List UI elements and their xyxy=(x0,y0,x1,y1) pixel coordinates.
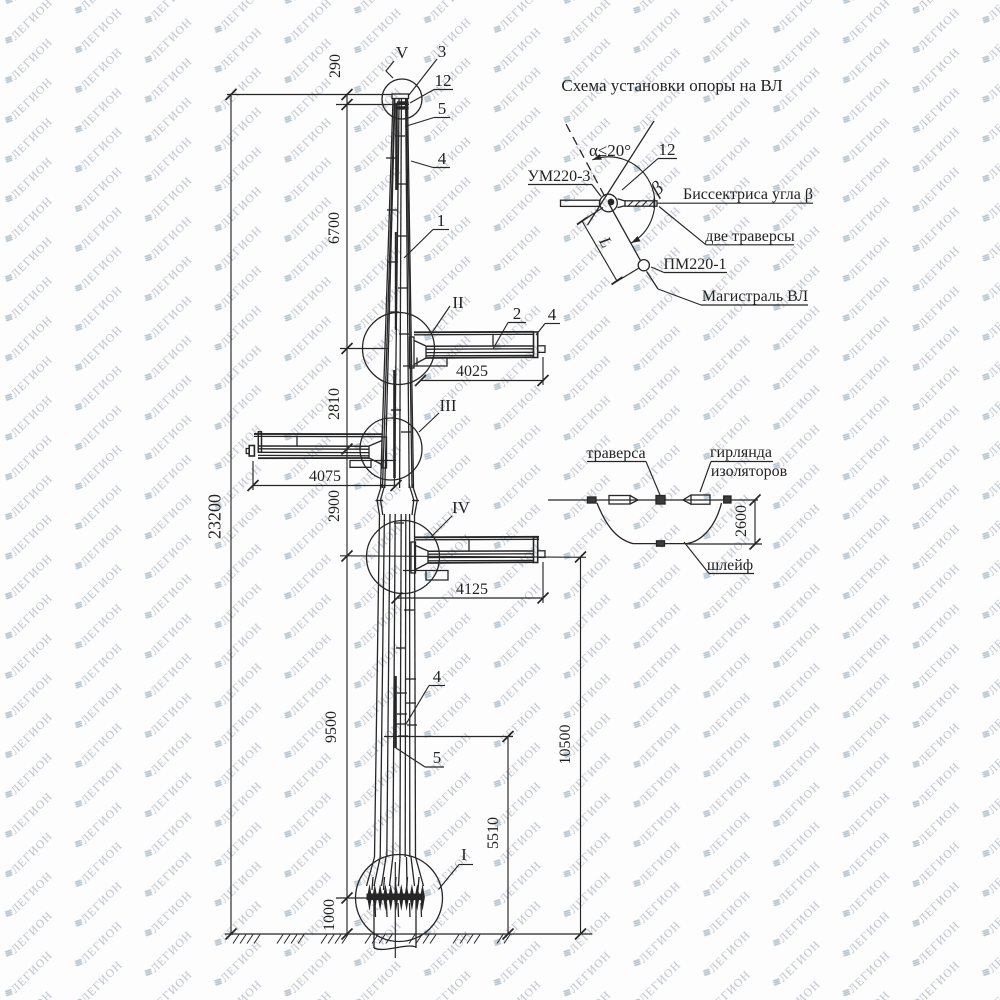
svg-text:I: I xyxy=(461,845,467,864)
svg-text:4: 4 xyxy=(438,149,447,168)
svg-text:5510: 5510 xyxy=(485,817,502,849)
svg-text:3: 3 xyxy=(438,42,447,61)
svg-text:гирлянда: гирлянда xyxy=(710,444,772,461)
svg-text:290: 290 xyxy=(327,54,344,78)
svg-text:1000: 1000 xyxy=(321,899,338,931)
svg-text:ПМ220-1: ПМ220-1 xyxy=(663,256,726,273)
svg-text:4: 4 xyxy=(433,667,442,686)
svg-text:изоляторов: изоляторов xyxy=(711,463,788,480)
svg-text:4125: 4125 xyxy=(456,581,488,598)
svg-text:5: 5 xyxy=(438,99,447,118)
svg-text:4025: 4025 xyxy=(456,363,488,380)
svg-text:α≤20°: α≤20° xyxy=(589,141,631,160)
svg-text:IV: IV xyxy=(452,498,471,517)
svg-text:Магистраль ВЛ: Магистраль ВЛ xyxy=(702,288,808,305)
svg-text:4075: 4075 xyxy=(309,468,341,485)
svg-text:траверса: траверса xyxy=(586,445,645,462)
svg-text:23200: 23200 xyxy=(205,494,225,539)
svg-text:9500: 9500 xyxy=(323,711,340,743)
svg-text:2810: 2810 xyxy=(326,388,343,420)
svg-text:шлейф: шлейф xyxy=(707,557,753,574)
svg-text:Биссектриса угла β: Биссектриса угла β xyxy=(683,186,813,203)
svg-text:Схема установки опоры на ВЛ: Схема установки опоры на ВЛ xyxy=(561,76,783,95)
svg-text:1: 1 xyxy=(437,211,446,230)
svg-text:5: 5 xyxy=(433,748,442,767)
svg-text:II: II xyxy=(452,293,464,312)
svg-text:12: 12 xyxy=(435,71,452,90)
svg-text:6700: 6700 xyxy=(326,212,343,244)
svg-text:III: III xyxy=(440,396,457,415)
svg-text:УМ220-3: УМ220-3 xyxy=(528,168,591,185)
svg-text:V: V xyxy=(396,43,409,62)
svg-text:4: 4 xyxy=(548,305,557,324)
svg-text:10500: 10500 xyxy=(557,725,574,765)
svg-text:2600: 2600 xyxy=(733,505,750,537)
svg-text:две траверсы: две траверсы xyxy=(705,228,795,245)
svg-text:2900: 2900 xyxy=(326,490,343,522)
svg-text:2: 2 xyxy=(513,304,522,323)
svg-text:12: 12 xyxy=(659,140,676,159)
